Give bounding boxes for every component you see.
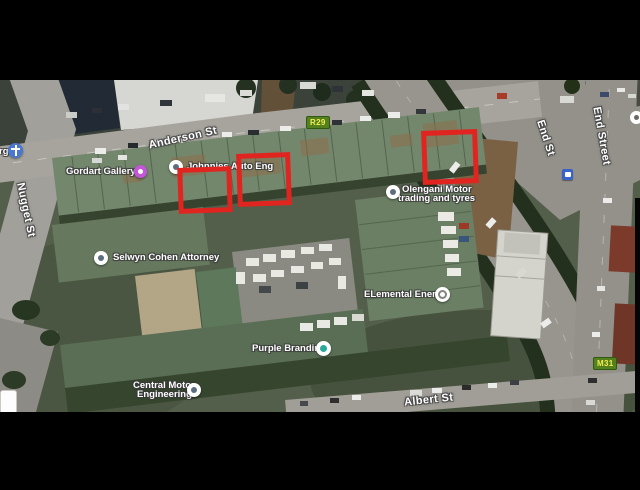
satellite-map[interactable]: Anderson St Nugget St End St End Street … [0, 80, 640, 412]
place-icon-olengani[interactable] [386, 185, 400, 199]
route-badge-r29: R29 [306, 116, 330, 129]
letterbox-bottom [0, 412, 640, 490]
map-control-partial[interactable] [0, 390, 17, 412]
annotation-box-3 [421, 129, 479, 185]
partial-place-icon[interactable] [630, 111, 640, 124]
annotation-box-1 [177, 166, 233, 214]
place-label-olengani-line2[interactable]: trading and tyres [398, 193, 475, 204]
white-building [491, 230, 548, 339]
business-teal-icon[interactable] [316, 341, 331, 356]
letterbox-top [0, 0, 640, 80]
right-edge-mask [635, 198, 640, 412]
bus-station-icon[interactable] [562, 169, 573, 180]
place-label-selwyn[interactable]: Selwyn Cohen Attorney [113, 252, 219, 263]
gallery-icon[interactable] [134, 165, 147, 178]
route-badge-m31: M31 [593, 357, 617, 370]
screenshot-frame: Anderson St Nugget St End St End Street … [0, 0, 640, 490]
pin-icon-selwyn[interactable] [94, 251, 108, 265]
place-label-purple-branding[interactable]: Purple Branding [252, 343, 326, 354]
business-ring-icon[interactable] [435, 287, 450, 302]
annotation-box-2 [236, 152, 292, 207]
pin-icon-central[interactable] [187, 383, 201, 397]
church-icon[interactable] [8, 143, 23, 158]
place-label-central-line2[interactable]: Engineering [137, 389, 192, 400]
place-label-gordart-gallery[interactable]: Gordart Gallery [66, 166, 136, 177]
